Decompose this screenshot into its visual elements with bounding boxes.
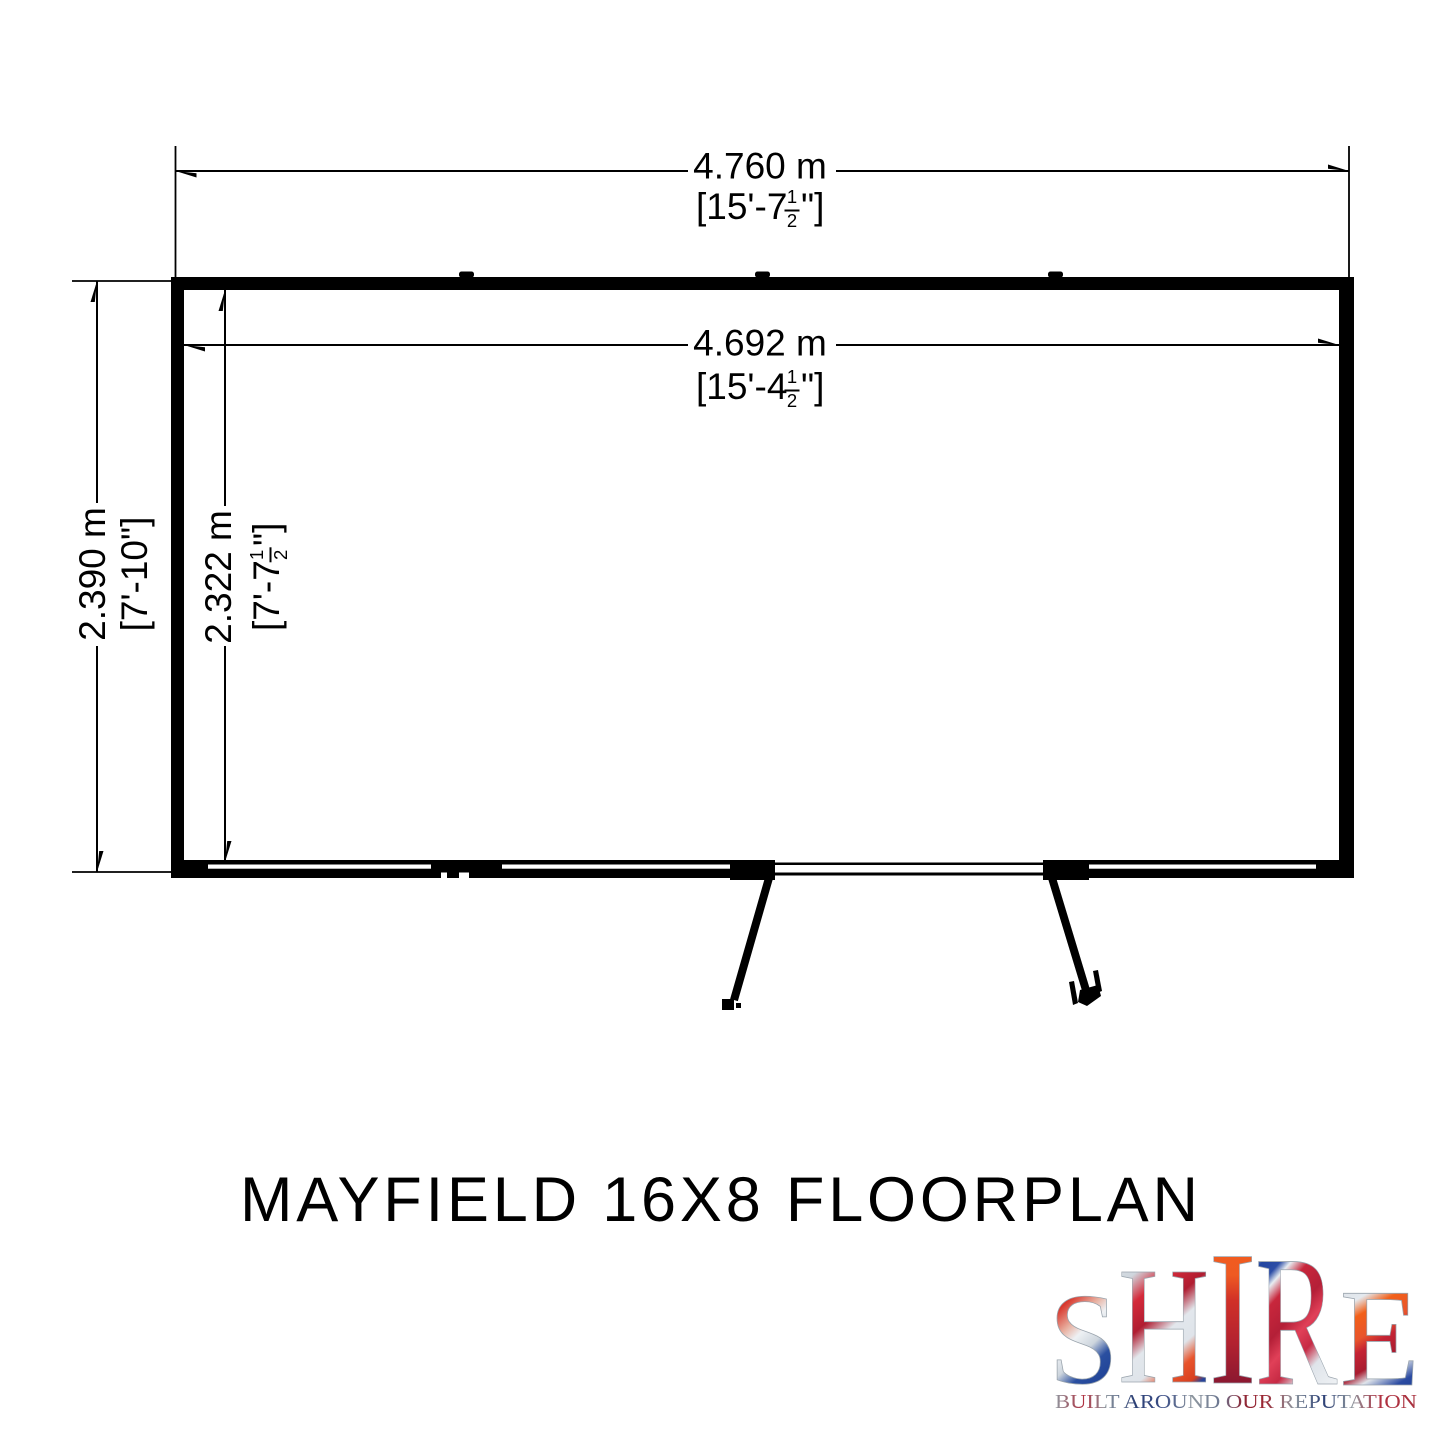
svg-text:[15'-7: [15'-7 — [696, 186, 787, 227]
svg-text:MAYFIELD 16X8 FLOORPLAN: MAYFIELD 16X8 FLOORPLAN — [240, 1165, 1198, 1235]
svg-text:2.322 m: 2.322 m — [198, 510, 239, 644]
svg-text:1: 1 — [246, 550, 267, 560]
svg-text:[7'-10"]: [7'-10"] — [114, 517, 155, 632]
svg-text:BUILT AROUND OUR REPUTATION: BUILT AROUND OUR REPUTATION — [1055, 1391, 1417, 1413]
svg-text:1: 1 — [787, 366, 797, 387]
svg-text:2: 2 — [787, 210, 797, 231]
svg-text:"]: "] — [801, 186, 824, 227]
svg-text:2: 2 — [787, 390, 797, 411]
svg-text:"]: "] — [801, 366, 824, 407]
svg-text:4.760 m: 4.760 m — [693, 146, 827, 187]
svg-text:2.390 m: 2.390 m — [72, 507, 113, 641]
svg-text:1: 1 — [787, 186, 797, 207]
svg-text:2: 2 — [270, 550, 291, 560]
svg-text:S: S — [1049, 1267, 1119, 1412]
svg-text:[15'-4: [15'-4 — [696, 366, 787, 407]
svg-text:"]: "] — [246, 523, 287, 546]
svg-text:4.692 m: 4.692 m — [693, 323, 827, 364]
svg-text:[7'-7: [7'-7 — [246, 560, 287, 631]
